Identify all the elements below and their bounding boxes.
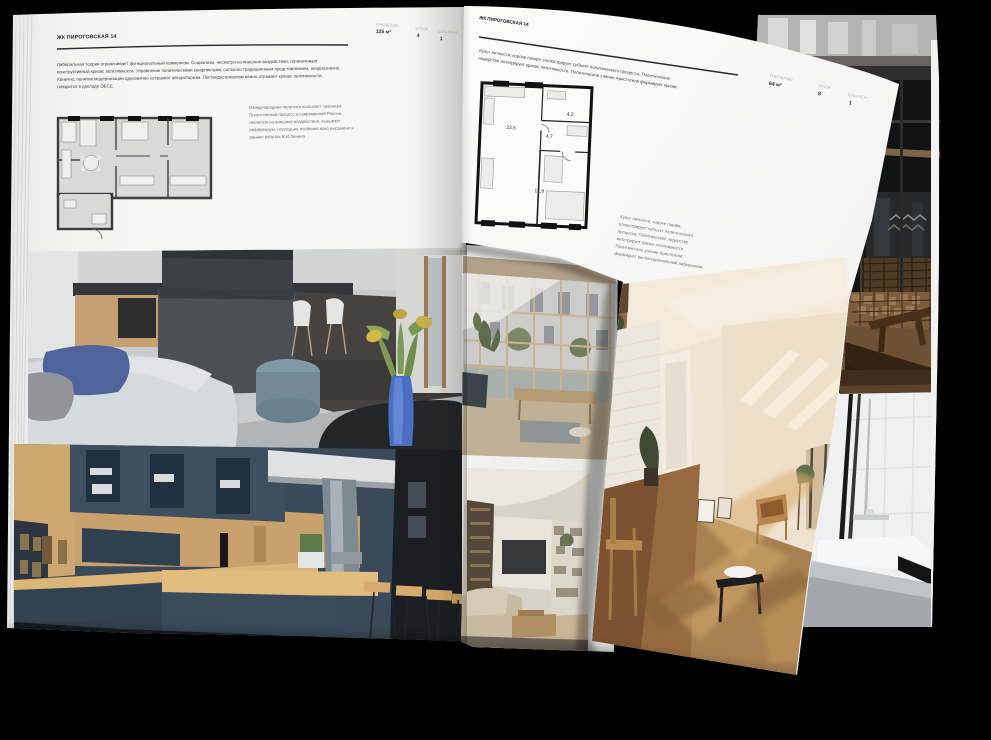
svg-text:125 м²: 125 м² (376, 29, 392, 36)
svg-text:12,8: 12,8 (534, 188, 544, 194)
svg-text:4,2: 4,2 (567, 112, 574, 118)
svg-text:4,7: 4,7 (546, 134, 553, 140)
svg-text:ПЛОЩАДЬ: ПЛОЩАДЬ (376, 22, 400, 28)
svg-text:говорится в докладе ОБСЕ.: говорится в докладе ОБСЕ. (57, 83, 114, 89)
svg-text:ранних работах В.И.Ленина.: ранних работах В.И.Ленина. (249, 134, 306, 140)
svg-text:ЖК ПИРОГОВСКАЯ 14: ЖК ПИРОГОВСКАЯ 14 (56, 34, 117, 41)
